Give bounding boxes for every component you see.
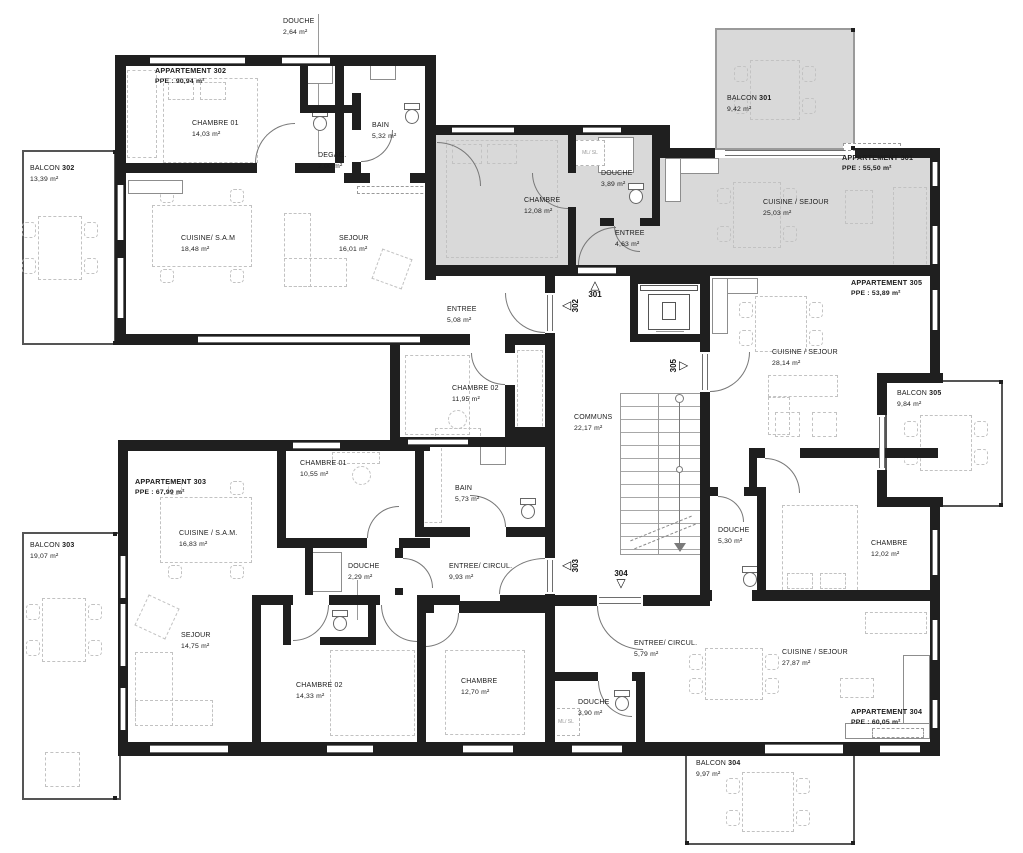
balcony-304-label: BALCON 304 9,97 m²	[696, 759, 740, 780]
wall-segment	[352, 162, 361, 173]
chair	[717, 188, 731, 204]
door-marker-301: △ 301	[581, 280, 609, 299]
toilet-icon	[614, 690, 630, 711]
room-label: DOUCHE5,30 m²	[718, 526, 750, 547]
room-label: ENTREE/ CIRCUL.5,79 m²	[634, 639, 697, 660]
wall-segment	[545, 333, 555, 558]
toilet-bowl	[615, 696, 629, 711]
furniture	[845, 190, 873, 224]
balcony-301-label: BALCON 301 9,42 m²	[727, 94, 771, 115]
chair	[904, 421, 918, 437]
window-opening	[120, 604, 126, 666]
chair	[796, 778, 810, 794]
staircase	[620, 393, 704, 555]
window-opening	[150, 745, 228, 753]
window-opening	[702, 354, 708, 390]
washer-dryer-box: ML/ SL	[575, 140, 605, 166]
door-arc	[505, 293, 545, 333]
toilet-icon	[742, 566, 758, 587]
wall-segment	[660, 148, 715, 158]
window-opening	[408, 439, 468, 445]
wall-segment	[410, 173, 436, 183]
room-label: CUISINE / S.A.M.16,83 m²	[179, 529, 237, 550]
furniture	[840, 678, 874, 698]
wall-segment	[600, 218, 614, 226]
door-arc	[293, 605, 329, 641]
room-label: CHAMBRE 0110,55 m²	[300, 459, 347, 480]
chair	[739, 302, 753, 318]
wall-segment	[505, 345, 515, 353]
door-arc	[425, 613, 459, 647]
room-label: CHAMBRE12,08 m²	[524, 196, 560, 217]
balcony-anchor	[113, 341, 117, 345]
wall-segment	[568, 135, 576, 173]
apartment-303-title: APPARTEMENT 303 PPE : 67,99 m²	[135, 477, 206, 498]
chair	[765, 678, 779, 694]
furniture	[755, 296, 807, 352]
furniture	[742, 772, 794, 832]
chair	[689, 678, 703, 694]
chair	[802, 98, 816, 114]
room-label: ENTREE/ CIRCUL.9,93 m²	[449, 562, 512, 583]
toilet-bowl	[743, 572, 757, 587]
elevator-door-line	[656, 331, 684, 332]
wall-segment	[335, 66, 344, 163]
elevator-mechanism	[640, 285, 698, 291]
wall-segment	[877, 373, 943, 383]
door-arc	[403, 558, 433, 588]
wall-segment	[757, 487, 766, 600]
stair-down-arrow	[674, 543, 686, 552]
wall-segment	[505, 334, 545, 345]
chair	[796, 810, 810, 826]
chair	[765, 654, 779, 670]
desk-chair	[448, 410, 467, 429]
furniture	[135, 700, 213, 726]
wall-segment	[568, 207, 576, 265]
wall-segment	[425, 601, 434, 613]
room-label: DEGAG.2,00 m²	[318, 151, 346, 172]
desk-chair	[352, 466, 371, 485]
door-marker-305: 305 ▷	[670, 359, 688, 372]
wall-segment	[636, 672, 645, 742]
chair	[84, 222, 98, 238]
window-opening	[150, 57, 245, 64]
wall-segment	[415, 440, 424, 537]
wall-segment	[877, 383, 887, 415]
chair	[230, 189, 244, 203]
chair	[22, 222, 36, 238]
furniture	[371, 248, 412, 289]
chair	[230, 269, 244, 283]
wall-segment	[752, 590, 940, 601]
door-arc	[710, 352, 750, 392]
furniture	[284, 258, 347, 287]
window-opening	[932, 162, 938, 186]
wall-segment	[252, 605, 261, 742]
wall-segment	[710, 487, 718, 496]
door-arc	[765, 458, 800, 493]
furniture	[134, 594, 179, 639]
triangle-left-icon: ◁	[562, 300, 571, 311]
room-label: ENTREE4,63 m²	[615, 229, 645, 250]
fixture	[128, 180, 183, 194]
wall-segment	[630, 276, 638, 342]
fixture	[665, 158, 681, 202]
room-label: SEJOUR14,75 m²	[181, 631, 211, 652]
furniture	[42, 598, 86, 662]
furniture	[865, 612, 927, 634]
toilet-bowl	[521, 504, 535, 519]
apartment-302-ppe: PPE : 90,94 m²	[155, 77, 226, 87]
wall-segment	[390, 345, 400, 437]
door-marker-302: ◁ 302	[562, 299, 580, 312]
wall-segment	[395, 588, 403, 595]
wall-segment	[630, 334, 710, 342]
room-label-communs: COMMUNS22,17 m²	[574, 413, 612, 434]
furniture	[45, 752, 80, 787]
window-opening	[765, 744, 843, 754]
toilet-icon	[520, 498, 536, 519]
chair	[230, 565, 244, 579]
room-label-exterior-shower: DOUCHE2,64 m²	[283, 17, 315, 38]
window-opening	[932, 290, 938, 330]
toilet-bowl	[629, 189, 643, 204]
window-opening	[725, 150, 845, 156]
furniture	[705, 648, 763, 700]
room-label: DOUCHE2,29 m²	[348, 562, 380, 583]
wall-segment	[435, 265, 940, 276]
balcony-anchor	[851, 28, 855, 32]
wall-segment	[125, 163, 257, 173]
apartment-301-title: APPARTEMENT 301 PPE : 55,50 m²	[842, 153, 913, 174]
furniture	[775, 412, 800, 437]
triangle-down-icon: ▽	[607, 578, 635, 589]
room-label: CHAMBRE 0114,03 m²	[192, 119, 239, 140]
window-opening	[599, 597, 641, 604]
window-opening	[282, 57, 330, 64]
furniture	[820, 573, 846, 589]
wall-segment	[277, 440, 286, 548]
wall-segment	[459, 601, 548, 613]
window-opening	[932, 530, 938, 575]
callout-leader-line	[318, 14, 319, 154]
chair	[84, 258, 98, 274]
window-opening	[293, 442, 340, 449]
balcony-anchor	[851, 146, 855, 150]
chair	[26, 640, 40, 656]
wall-segment	[505, 385, 515, 437]
toilet-bowl	[405, 109, 419, 124]
window-opening	[463, 745, 513, 753]
apartment-302-name: APPARTEMENT 302	[155, 66, 226, 77]
chair	[22, 258, 36, 274]
wall-segment	[800, 448, 938, 458]
wall-segment	[320, 637, 376, 645]
wall-segment	[277, 538, 367, 548]
balcony-anchor	[113, 796, 117, 800]
window-opening	[880, 745, 920, 753]
wall-segment	[305, 548, 313, 595]
furniture	[38, 216, 82, 280]
door-arc	[367, 506, 399, 538]
vent-strip	[872, 728, 924, 738]
window-opening	[117, 258, 124, 318]
fixture	[480, 445, 506, 465]
room-label: CHAMBRE 0211,95 m²	[452, 384, 499, 405]
fixture	[312, 552, 342, 592]
chair	[717, 226, 731, 242]
balcony-305-label: BALCON 305 9,84 m²	[897, 389, 941, 410]
door-arc	[471, 353, 505, 385]
window-opening	[547, 560, 553, 592]
toilet-bowl	[333, 616, 347, 631]
room-label: DOUCHE3,90 m²	[578, 698, 610, 719]
fixture	[712, 278, 728, 334]
window-opening	[547, 295, 553, 331]
chair	[168, 565, 182, 579]
balcony-anchor	[999, 503, 1003, 507]
furniture	[517, 350, 543, 436]
window-opening	[932, 700, 938, 728]
balcony-303-label: BALCON 303 19,07 m²	[30, 541, 74, 562]
window-opening	[117, 185, 124, 240]
chair	[739, 330, 753, 346]
chair	[734, 66, 748, 82]
chair	[26, 604, 40, 620]
window-opening	[572, 745, 622, 753]
chair	[88, 640, 102, 656]
chair	[974, 421, 988, 437]
furniture	[812, 412, 837, 437]
wall-segment	[700, 392, 710, 600]
wall-segment	[545, 276, 555, 293]
toilet-icon	[404, 103, 420, 124]
balcony-anchor	[999, 380, 1003, 384]
toilet-icon	[312, 110, 328, 131]
window-opening	[327, 745, 373, 753]
room-label: BAIN5,73 m²	[455, 484, 479, 505]
wall-segment	[118, 440, 430, 451]
chair	[974, 449, 988, 465]
wall-segment	[877, 497, 943, 507]
door-arc	[381, 605, 417, 642]
chair	[726, 778, 740, 794]
apartment-305-title: APPARTEMENT 305 PPE : 53,89 m²	[851, 278, 922, 299]
room-label: BAIN5,32 m²	[372, 121, 396, 142]
room-label: CHAMBRE 0214,33 m²	[296, 681, 343, 702]
wall-segment	[749, 448, 757, 496]
vent-strip	[357, 186, 433, 194]
wall-segment	[555, 672, 598, 681]
door-arc	[255, 123, 295, 163]
balcony-302-label: BALCON 302 13,39 m²	[30, 164, 74, 185]
furniture	[127, 70, 157, 158]
chair	[160, 269, 174, 283]
chair	[809, 302, 823, 318]
furniture	[787, 573, 813, 589]
elevator-counterweight	[662, 302, 676, 320]
toilet-bowl	[313, 116, 327, 131]
room-label: CHAMBRE12,70 m²	[461, 677, 497, 698]
room-label: CUISINE/ S.A.M18,48 m²	[181, 234, 235, 255]
window-opening	[198, 336, 420, 343]
furniture	[768, 375, 838, 397]
wall-segment	[652, 135, 660, 220]
room-label: CUISINE / SEJOUR28,14 m²	[772, 348, 838, 369]
room-label: DOUCHE3,89 m²	[601, 169, 633, 190]
stair-mid-circle	[676, 466, 683, 473]
washer-dryer-box: ML/ SL	[552, 708, 580, 736]
stair-start-circle	[675, 394, 684, 403]
chair	[726, 810, 740, 826]
wall-segment	[415, 527, 470, 537]
furniture	[330, 650, 415, 736]
balcony-anchor	[685, 841, 689, 845]
door-marker-303: ◁ 303	[562, 559, 580, 572]
wall-segment	[352, 93, 361, 130]
wall-segment	[630, 276, 710, 284]
room-label: SEJOUR16,01 m²	[339, 234, 369, 255]
chair	[783, 226, 797, 242]
window-opening	[452, 127, 514, 133]
furniture	[487, 144, 517, 164]
chair	[809, 330, 823, 346]
wall-segment	[515, 427, 545, 437]
wall-segment	[399, 538, 430, 548]
balcony-anchor	[113, 532, 117, 536]
furniture	[893, 187, 927, 269]
room-label: CHAMBRE12,02 m²	[871, 539, 907, 560]
wall-segment	[877, 470, 887, 497]
floor-plan: APPARTEMENT 302 PPE : 90,94 m² CHAMBRE 0…	[0, 0, 1023, 853]
wall-segment	[425, 55, 436, 280]
apartment-304-title: APPARTEMENT 304 PPE : 60,05 m²	[851, 707, 922, 728]
chair	[88, 604, 102, 620]
wall-segment	[757, 448, 765, 458]
balcony-anchor	[851, 841, 855, 845]
chair	[802, 66, 816, 82]
door-arc	[718, 496, 744, 522]
wall-segment	[436, 334, 470, 345]
window-opening	[578, 267, 616, 274]
wall-segment	[344, 173, 370, 183]
wall-segment	[300, 105, 352, 113]
chair	[230, 481, 244, 495]
window-opening	[583, 127, 621, 133]
toilet-icon	[332, 610, 348, 631]
wall-segment	[283, 637, 290, 645]
room-label: ENTREE5,08 m²	[447, 305, 477, 326]
wall-segment	[700, 590, 712, 601]
window-opening	[932, 226, 938, 264]
room-label: CUISINE / SEJOUR25,03 m²	[763, 198, 829, 219]
window-opening	[120, 556, 126, 598]
room-label: CUISINE / SEJOUR27,87 m²	[782, 648, 848, 669]
window-opening	[879, 417, 885, 468]
wall-segment	[506, 527, 545, 537]
door-marker-304: 304 ▽	[607, 570, 635, 589]
wall-segment	[417, 605, 426, 742]
balcony-anchor	[113, 150, 117, 154]
furniture	[920, 415, 972, 471]
triangle-left-icon: ◁	[562, 560, 571, 571]
wall-segment	[545, 601, 555, 742]
wall-segment	[417, 595, 460, 605]
apartment-302-title: APPARTEMENT 302 PPE : 90,94 m²	[155, 66, 226, 87]
wall-segment	[395, 548, 403, 558]
window-opening	[120, 688, 126, 730]
triangle-right-icon: ▷	[679, 360, 688, 371]
window-opening	[932, 620, 938, 660]
